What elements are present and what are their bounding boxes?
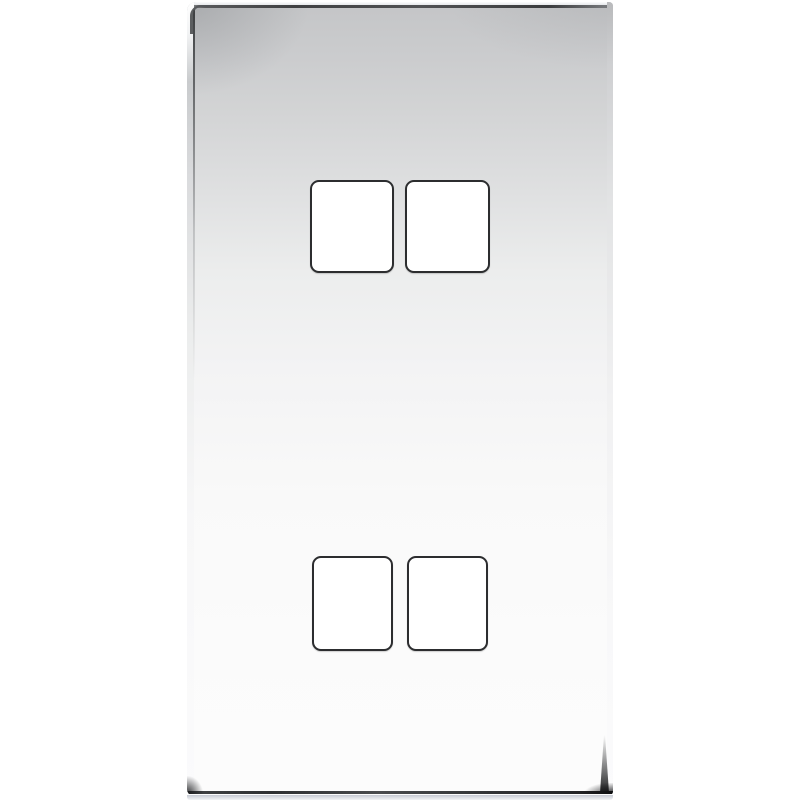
aperture-bottom-right (407, 556, 488, 651)
product-photo (0, 0, 800, 800)
switch-plate (187, 2, 613, 796)
plate-bottom-edge (187, 791, 613, 794)
aperture-grid (187, 2, 613, 796)
aperture-bottom-left (312, 556, 393, 651)
surface-reflection (187, 795, 613, 800)
aperture-top-left (310, 180, 394, 273)
aperture-top-right (405, 180, 490, 273)
